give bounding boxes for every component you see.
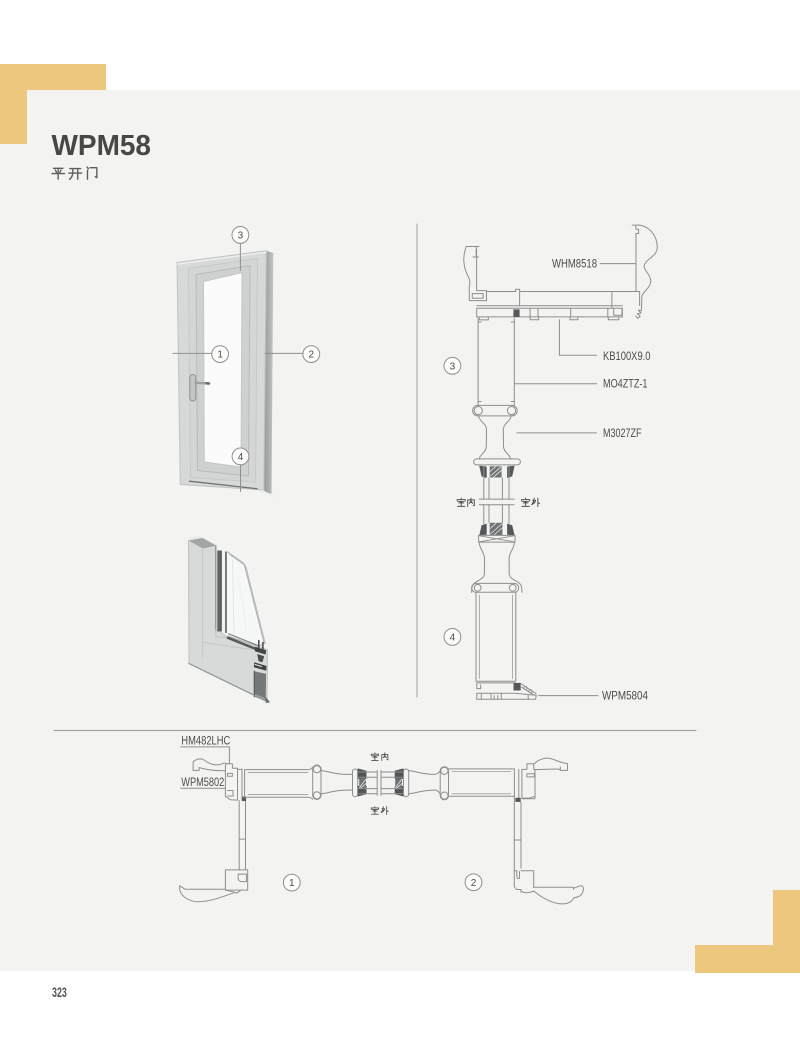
svg-text:4: 4 (450, 633, 456, 644)
svg-text:KB100X9.0: KB100X9.0 (603, 351, 651, 363)
svg-text:WPM5802: WPM5802 (181, 777, 224, 789)
svg-text:2: 2 (309, 350, 315, 361)
svg-text:WPM5804: WPM5804 (602, 690, 649, 702)
svg-text:1: 1 (217, 350, 223, 361)
svg-text:323: 323 (52, 987, 67, 1001)
svg-text:3: 3 (238, 231, 244, 242)
svg-text:WHM8518: WHM8518 (552, 259, 597, 271)
svg-text:2: 2 (471, 878, 477, 889)
svg-text:4: 4 (238, 452, 244, 463)
svg-text:HM482LHC: HM482LHC (181, 736, 230, 748)
svg-text:M3027ZF: M3027ZF (603, 428, 642, 440)
svg-text:3: 3 (450, 361, 456, 372)
svg-text:1: 1 (289, 878, 295, 889)
svg-text:MO4ZTZ-1: MO4ZTZ-1 (603, 379, 648, 391)
svg-text:WPM58: WPM58 (52, 130, 152, 162)
